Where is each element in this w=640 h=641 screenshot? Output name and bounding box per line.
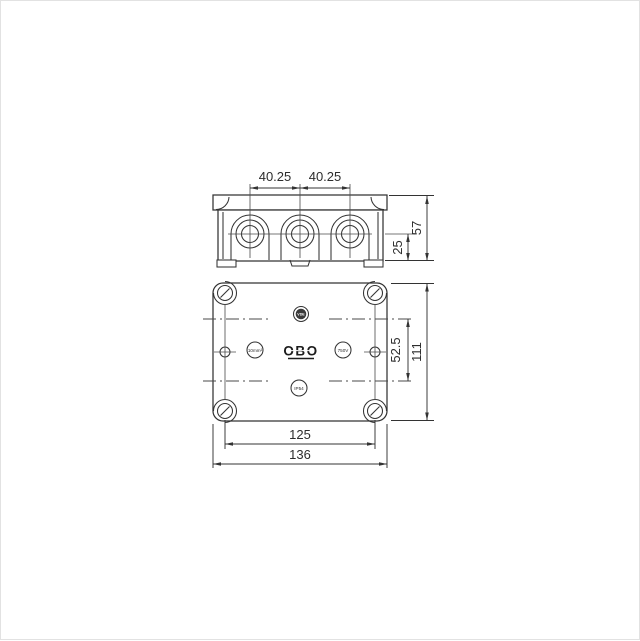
- rating-mark-conductor: 10mm²: [247, 342, 263, 358]
- conductor-rating-label: 10mm²: [248, 348, 263, 353]
- foot-left: [217, 260, 236, 267]
- dim-label-25: 25: [390, 240, 405, 254]
- dimension-screw-spacing-125: 125: [225, 420, 375, 449]
- voltage-rating-label: 750V: [338, 348, 350, 353]
- rating-mark-voltage: 750V: [335, 342, 351, 358]
- dimension-inner-52-5: 52.5: [388, 319, 410, 381]
- vde-certification-mark: VDE: [294, 307, 309, 322]
- rating-mark-ip: IP54: [291, 380, 307, 396]
- dim-label-spacing-right: 40.25: [309, 169, 342, 184]
- front-view: VDE 10mm² 750V IP54 OBO 111: [203, 282, 434, 469]
- dim-label-57: 57: [409, 221, 424, 235]
- dim-label-125: 125: [289, 427, 311, 442]
- technical-drawing-page: 40.25 40.25 57 25: [0, 0, 640, 640]
- foot-right: [364, 260, 383, 267]
- dimension-center-to-bottom-25: 25: [390, 234, 410, 261]
- dim-label-spacing-left: 40.25: [259, 169, 292, 184]
- ip-rating-label: IP54: [294, 386, 304, 391]
- dim-label-52-5: 52.5: [388, 337, 403, 362]
- top-view: 40.25 40.25 57 25: [213, 169, 434, 267]
- junction-box-drawing: 40.25 40.25 57 25: [1, 1, 640, 641]
- obo-logo: OBO: [283, 344, 318, 359]
- dim-label-136: 136: [289, 447, 311, 462]
- dim-label-111: 111: [409, 342, 424, 362]
- cert-mark-label: VDE: [297, 312, 305, 316]
